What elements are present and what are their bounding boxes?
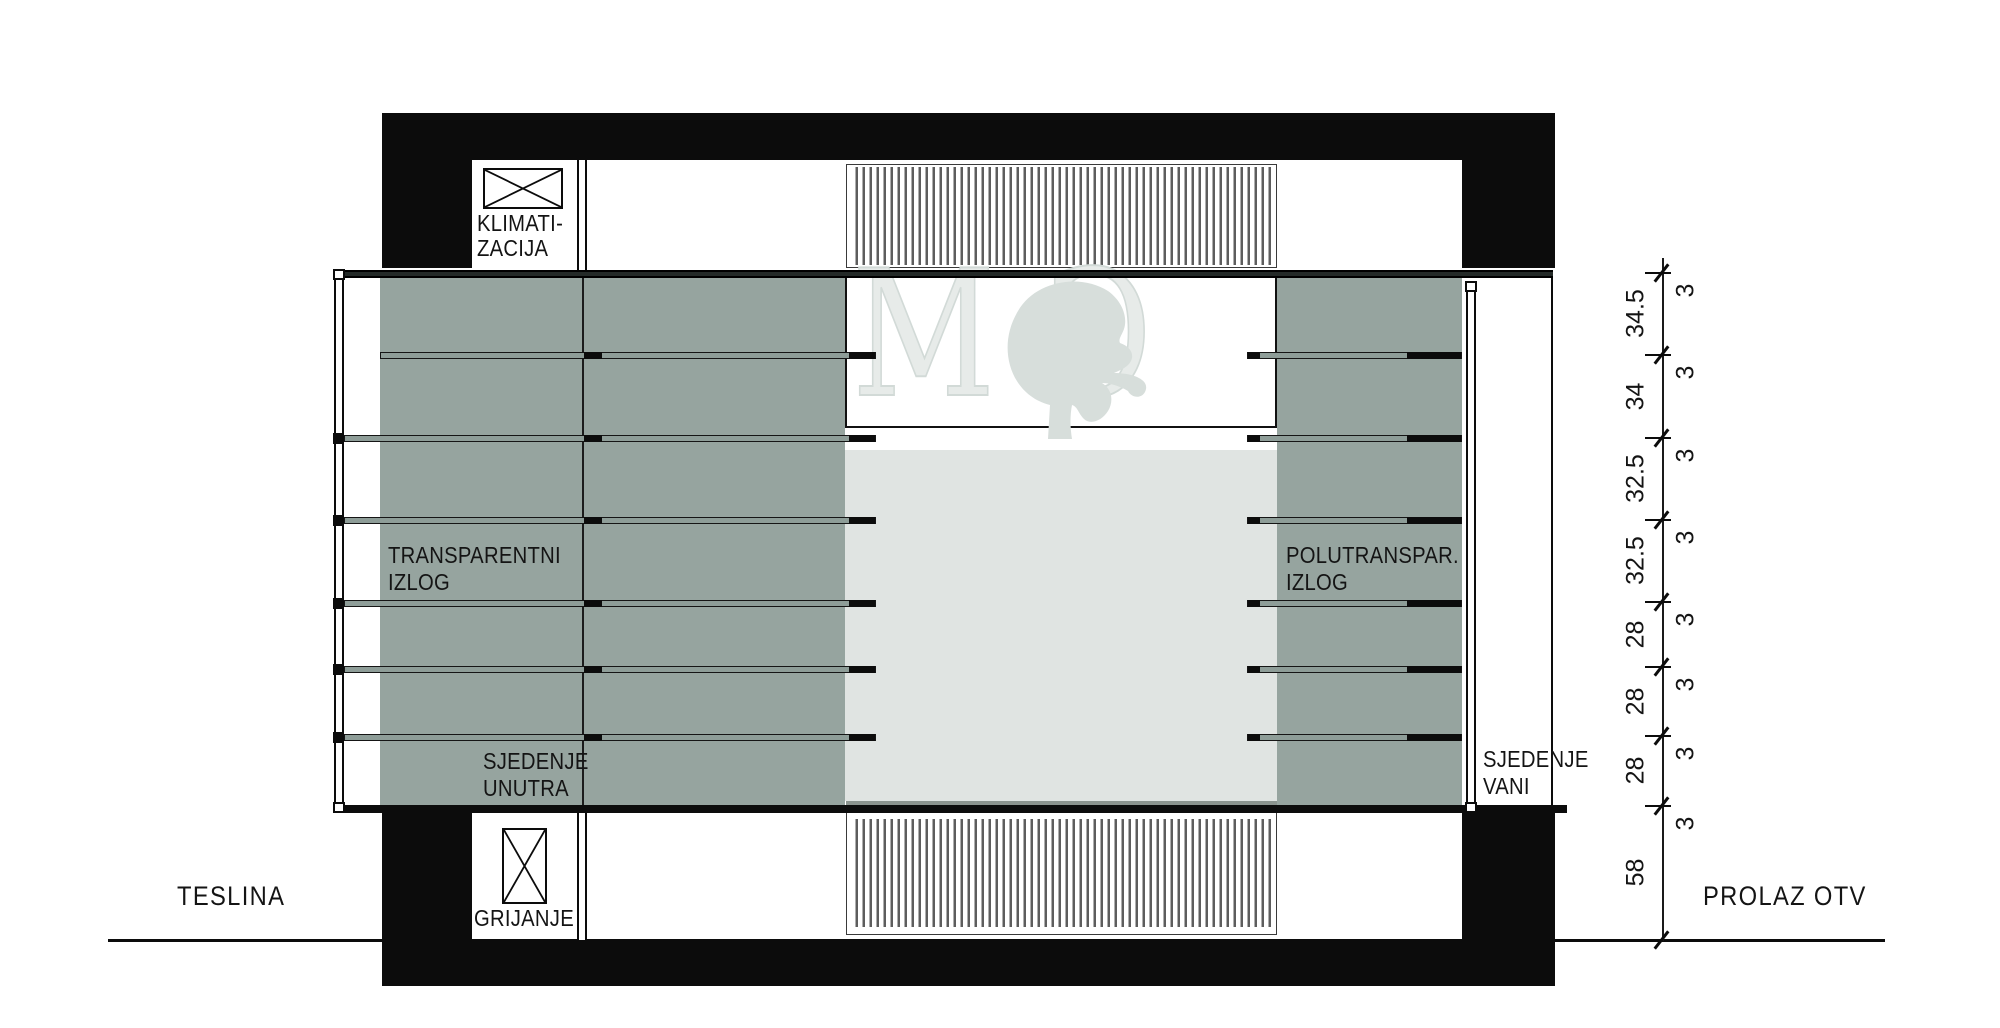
label-transparentni-line2: IZLOG bbox=[388, 570, 450, 595]
glass-corner-joint bbox=[333, 802, 345, 813]
crossed-box-icon bbox=[504, 830, 545, 902]
dimension-label-gap: 34.5 bbox=[1624, 279, 1649, 349]
watermark-face bbox=[990, 277, 1156, 439]
dimension-label-3: 3 bbox=[1674, 359, 1699, 387]
shelf-glass-connector bbox=[333, 732, 344, 743]
street-label-right: PROLAZ OTV bbox=[1703, 882, 1867, 912]
dimension-label-gap: 32.5 bbox=[1624, 526, 1649, 596]
shelf-glass-connector bbox=[333, 515, 344, 526]
shelf-bar bbox=[1247, 517, 1462, 524]
label-grijanje: GRIJANJE bbox=[474, 906, 574, 931]
dimension-label-3: 3 bbox=[1674, 740, 1699, 768]
bottom-rail bbox=[334, 805, 1567, 813]
roof-slab bbox=[382, 113, 1555, 160]
interior-space bbox=[845, 450, 1277, 801]
shelf-cap bbox=[1407, 352, 1461, 359]
label-klimatizacija-line2: ZACIJA bbox=[477, 236, 548, 261]
dimension-label-gap: 58 bbox=[1624, 838, 1649, 908]
ac-unit-symbol bbox=[483, 168, 563, 209]
architectural-section-drawing: KLIMATI- ZACIJA GRIJANJE M G bbox=[0, 0, 2000, 1028]
label-sjedenje-vani-line2: VANI bbox=[1483, 774, 1530, 799]
shelf-bar bbox=[1247, 600, 1462, 607]
dimension-label-gap: 34 bbox=[1624, 362, 1649, 432]
shelf-bar bbox=[344, 435, 876, 442]
shelf-cap bbox=[849, 734, 875, 741]
base-slab bbox=[382, 940, 1555, 986]
shelf-cap bbox=[584, 517, 602, 524]
shelf-cap bbox=[849, 435, 875, 442]
shelf-cap bbox=[1407, 517, 1461, 524]
label-sjedenje-unutra-line2: UNUTRA bbox=[483, 776, 569, 801]
roof-right-leg bbox=[1462, 160, 1555, 268]
roof-left-leg bbox=[382, 160, 472, 268]
dimension-label-3: 3 bbox=[1674, 524, 1699, 552]
shelf-cap bbox=[584, 435, 602, 442]
dimension-label-3: 3 bbox=[1674, 277, 1699, 305]
right-outer-edge-line bbox=[1551, 278, 1553, 806]
shelf-cap bbox=[1248, 352, 1260, 359]
shelf-cap bbox=[1248, 517, 1260, 524]
shelf-bar bbox=[380, 352, 876, 359]
grille-slats bbox=[851, 819, 1272, 927]
ac-niche-partition bbox=[577, 160, 587, 270]
shelf-cap bbox=[584, 666, 602, 673]
glass-corner-joint bbox=[1465, 281, 1477, 292]
top-rail bbox=[334, 270, 1553, 278]
shelf-cap bbox=[1407, 435, 1461, 442]
dimension-label-gap: 32.5 bbox=[1624, 444, 1649, 514]
shelf-cap bbox=[849, 352, 875, 359]
dimension-label-3: 3 bbox=[1674, 442, 1699, 470]
dimension-label-3: 3 bbox=[1674, 606, 1699, 634]
bottom-vent-grille bbox=[846, 811, 1277, 935]
shelf-bar bbox=[1247, 666, 1462, 673]
label-polutranspar-line2: IZLOG bbox=[1286, 570, 1348, 595]
shelf-cap bbox=[849, 666, 875, 673]
shelf-bar bbox=[344, 734, 876, 741]
shelf-bar bbox=[1247, 352, 1462, 359]
shelf-glass-connector bbox=[333, 664, 344, 675]
shelf-cap bbox=[1248, 734, 1260, 741]
shelf-cap bbox=[584, 600, 602, 607]
shelf-cap bbox=[1248, 435, 1260, 442]
shelf-cap bbox=[1407, 600, 1461, 607]
dimension-label-3: 3 bbox=[1674, 810, 1699, 838]
shelf-cap bbox=[849, 600, 875, 607]
shelf-cap bbox=[584, 352, 602, 359]
base-right-wall bbox=[1462, 813, 1555, 940]
shelf-cap bbox=[849, 517, 875, 524]
label-klimatizacija-line1: KLIMATI- bbox=[477, 211, 563, 236]
glass-corner-joint bbox=[333, 269, 345, 280]
shelf-bar bbox=[1247, 734, 1462, 741]
label-sjedenje-unutra-line1: SJEDENJE bbox=[483, 749, 589, 774]
shelf-cap bbox=[584, 734, 602, 741]
dimension-label-gap: 28 bbox=[1624, 667, 1649, 737]
label-polutranspar-line1: POLUTRANSPAR. bbox=[1286, 543, 1459, 568]
dimension-label-3: 3 bbox=[1674, 671, 1699, 699]
shelf-cap bbox=[1407, 734, 1461, 741]
crossed-box-icon bbox=[485, 170, 561, 207]
glass-corner-joint bbox=[1465, 802, 1477, 813]
shelf-bar bbox=[1247, 435, 1462, 442]
heater-symbol bbox=[502, 828, 547, 904]
shelf-bar bbox=[344, 666, 876, 673]
shelf-glass-connector bbox=[333, 433, 344, 444]
label-sjedenje-vani-line1: SJEDENJE bbox=[1483, 747, 1589, 772]
base-left-wall bbox=[382, 813, 472, 940]
dimension-label-gap: 28 bbox=[1624, 600, 1649, 670]
dimension-label-gap: 28 bbox=[1624, 736, 1649, 806]
shelf-bar bbox=[344, 600, 876, 607]
shelf-bar bbox=[344, 517, 876, 524]
heater-niche-partition bbox=[577, 813, 587, 940]
shelf-cap bbox=[1407, 666, 1461, 673]
shelf-cap bbox=[1248, 666, 1260, 673]
label-transparentni-line1: TRANSPARENTNI bbox=[388, 543, 561, 568]
shelf-glass-connector bbox=[333, 598, 344, 609]
right-glass-front bbox=[1466, 281, 1476, 813]
street-label-left: TESLINA bbox=[177, 882, 285, 912]
shelf-cap bbox=[1248, 600, 1260, 607]
